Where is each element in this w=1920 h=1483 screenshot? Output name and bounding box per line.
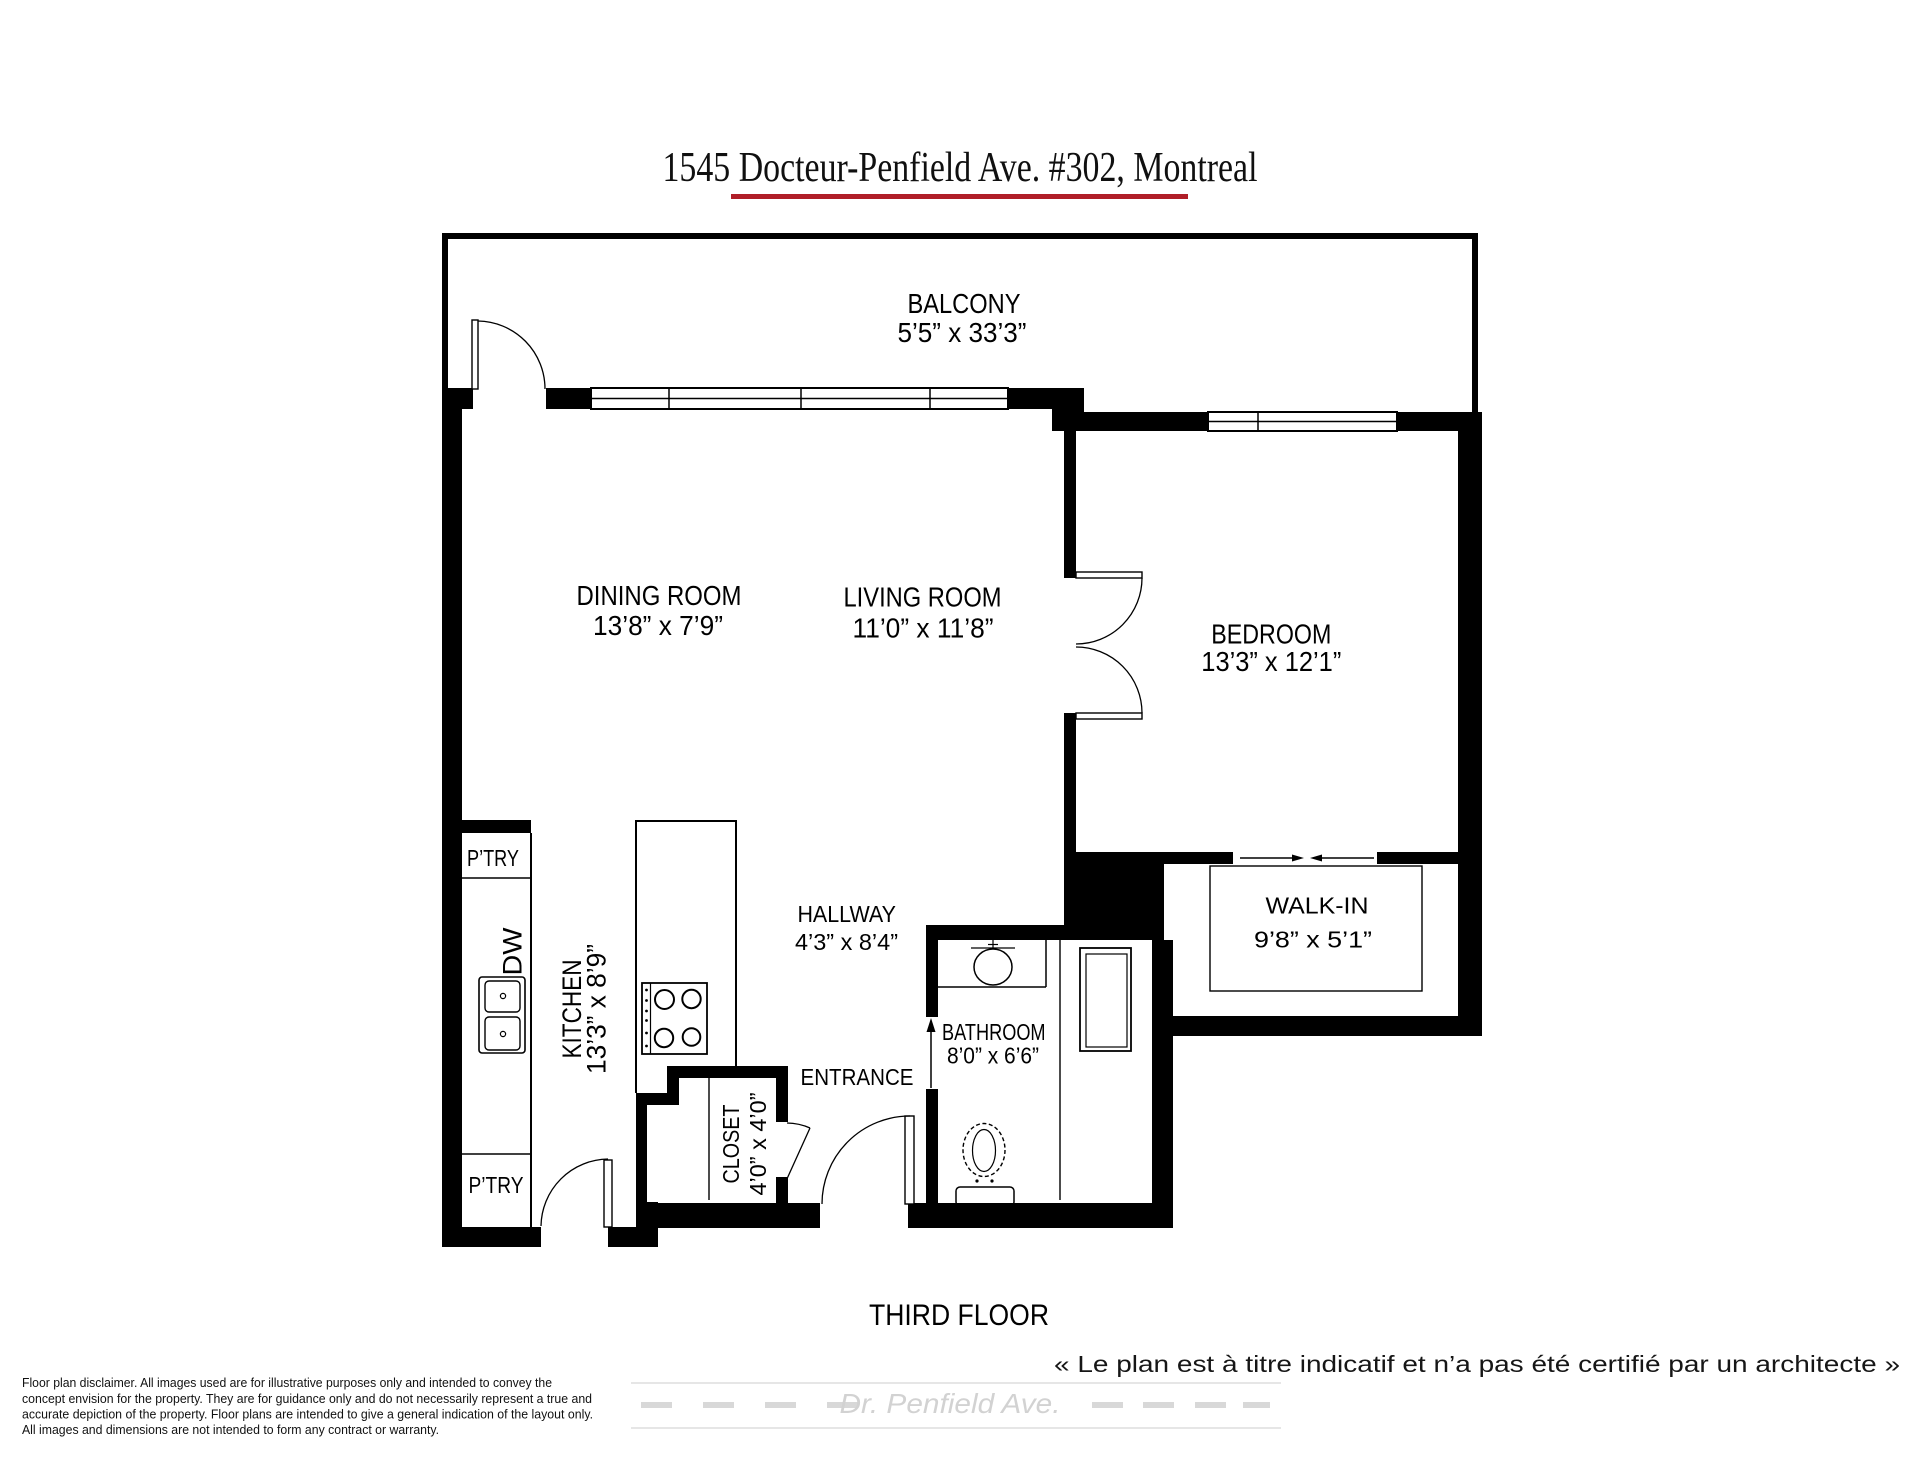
svg-text:DW: DW [498,927,528,976]
svg-text:LIVING ROOM: LIVING ROOM [844,582,1002,613]
svg-text:CLOSET: CLOSET [718,1105,744,1184]
svg-text:DINING ROOM: DINING ROOM [577,580,742,611]
svg-text:9’8” x 5’1”: 9’8” x 5’1” [1254,927,1372,953]
svg-text:WALK-IN: WALK-IN [1266,893,1369,919]
svg-text:11’0” x 11’8”: 11’0” x 11’8” [853,613,994,644]
svg-text:Dr. Penfield Ave.: Dr. Penfield Ave. [840,1388,1061,1419]
svg-text:HALLWAY: HALLWAY [797,901,896,927]
svg-text:P’TRY: P’TRY [467,845,519,871]
svg-text:All images and dimensions are: All images and dimensions are not intend… [22,1422,439,1437]
svg-text:THIRD FLOOR: THIRD FLOOR [869,1299,1049,1332]
svg-text:accurate depiction of the prop: accurate depiction of the property. Floo… [22,1407,593,1422]
svg-text:BEDROOM: BEDROOM [1211,619,1331,650]
svg-text:BALCONY: BALCONY [908,288,1021,319]
svg-text:concept envision for the prope: concept envision for the property. They … [22,1391,592,1406]
svg-text:13’3” x 8’9”: 13’3” x 8’9” [582,944,612,1074]
svg-text:13’3” x 12’1”: 13’3” x 12’1” [1201,646,1341,677]
svg-text:8’0” x 6’6”: 8’0” x 6’6” [947,1043,1039,1069]
svg-text:1545 Docteur-Penfield Ave. #30: 1545 Docteur-Penfield Ave. #302, Montrea… [663,145,1258,191]
svg-text:5’5” x 33’3”: 5’5” x 33’3” [898,317,1027,348]
svg-text:« Le plan est à titre indicati: « Le plan est à titre indicatif et n’a p… [1054,1351,1900,1377]
svg-text:BATHROOM: BATHROOM [942,1019,1046,1045]
svg-text:ENTRANCE: ENTRANCE [801,1064,914,1090]
svg-text:4’0” x 4’0”: 4’0” x 4’0” [745,1093,771,1196]
svg-text:Floor plan disclaimer. All ima: Floor plan disclaimer. All images used a… [22,1375,552,1390]
svg-text:P’TRY: P’TRY [469,1172,524,1198]
svg-text:13’8” x 7’9”: 13’8” x 7’9” [593,610,723,641]
svg-text:4’3” x 8’4”: 4’3” x 8’4” [795,929,898,955]
